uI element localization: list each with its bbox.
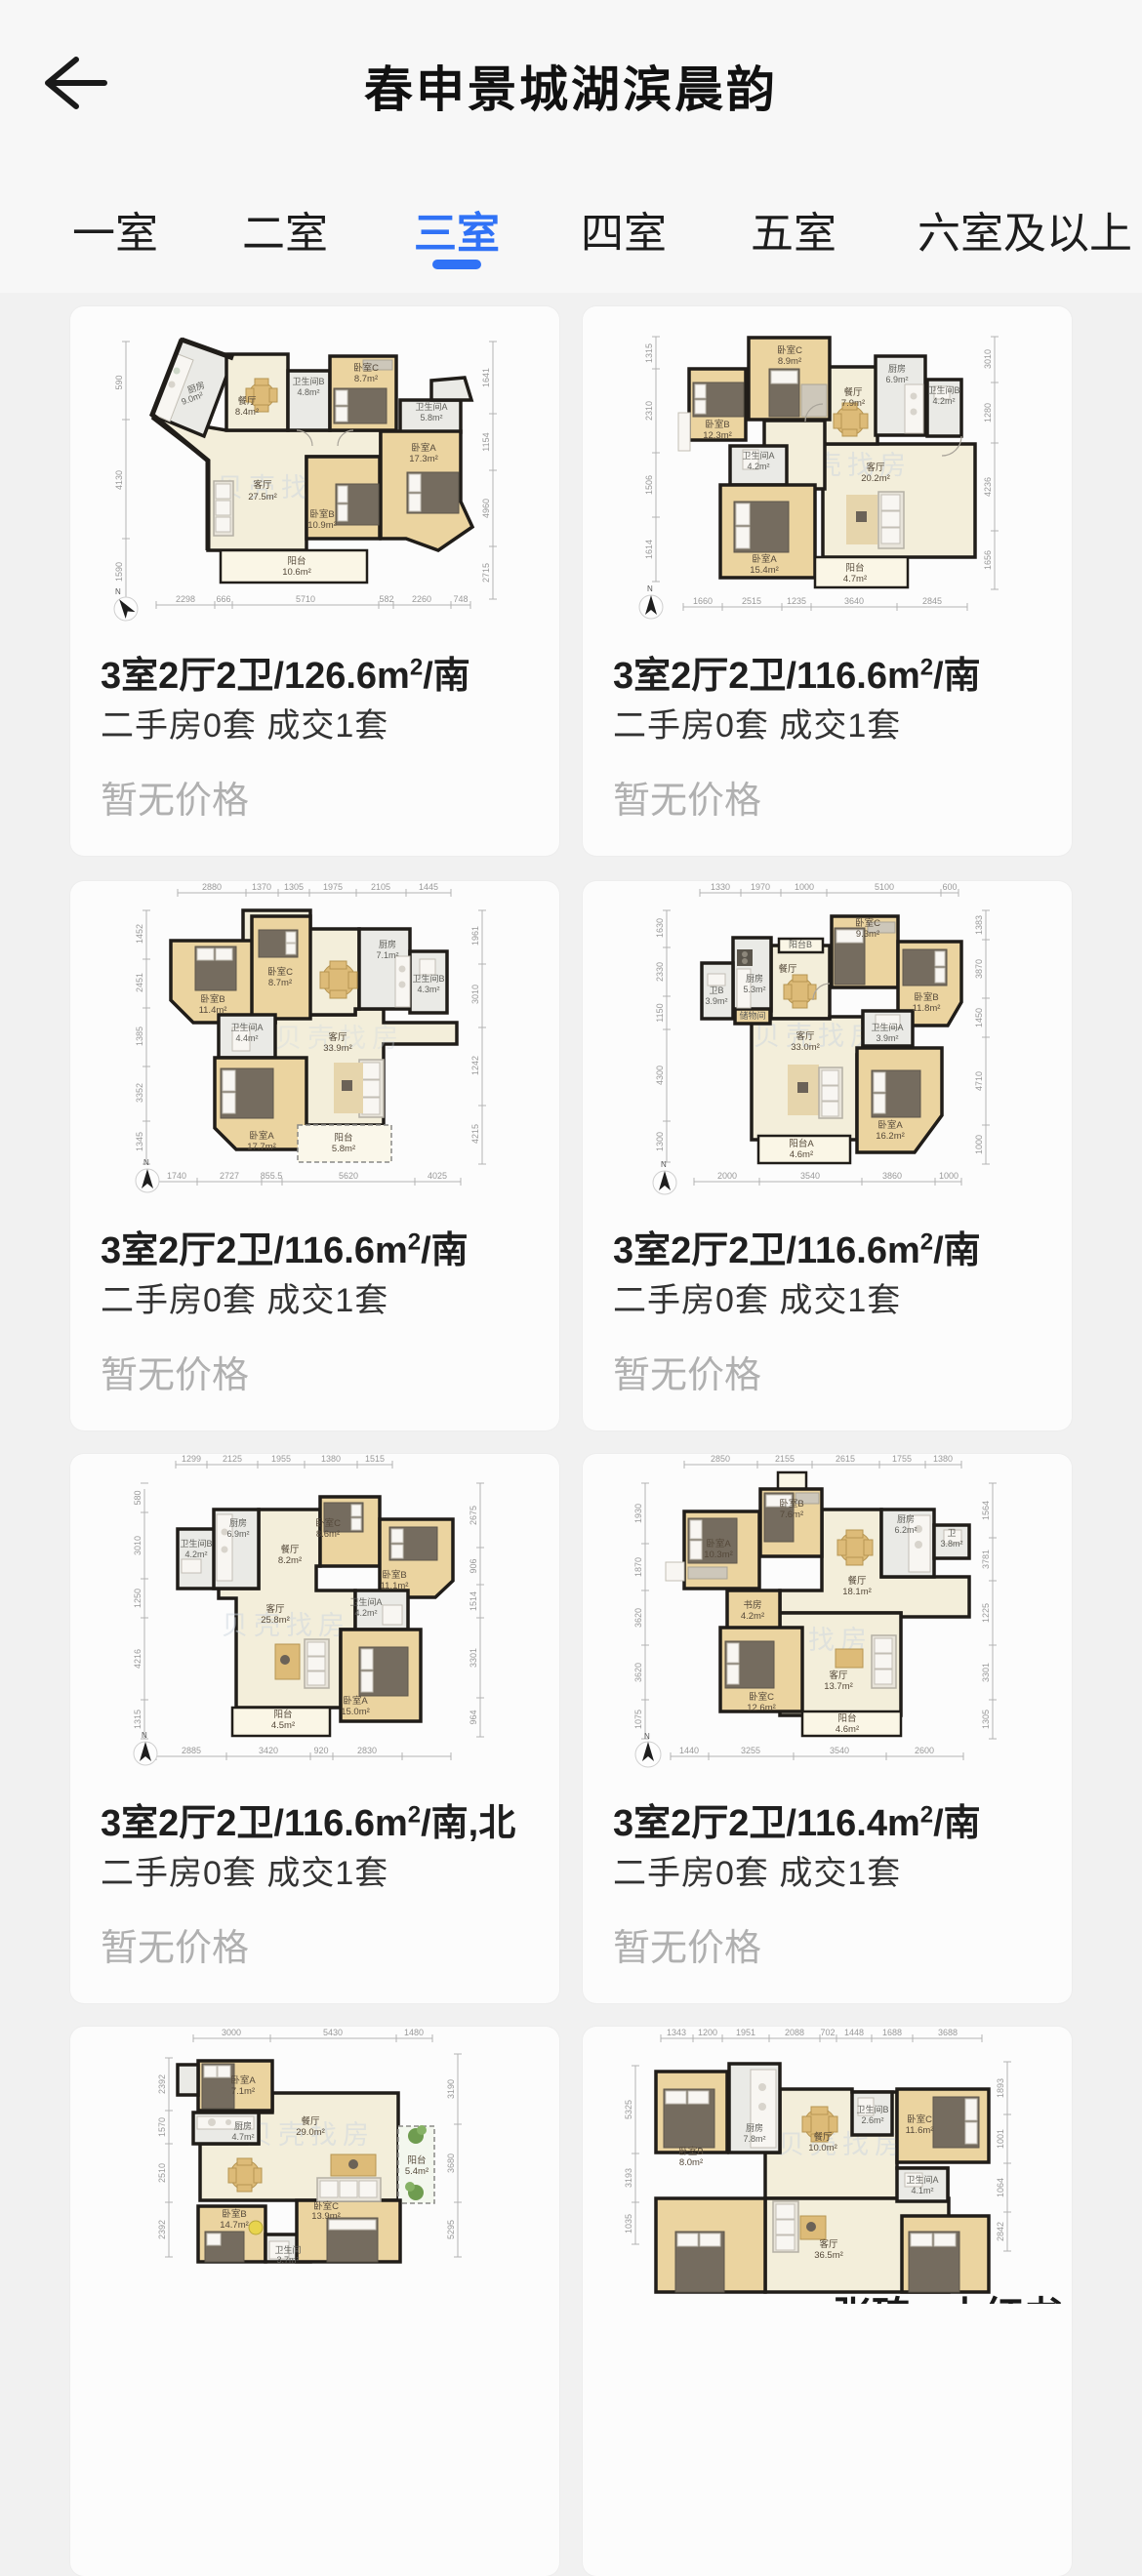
svg-text:卫生间A: 卫生间A	[871, 1022, 903, 1032]
svg-text:5325: 5325	[624, 2100, 633, 2119]
svg-text:1343: 1343	[667, 2028, 686, 2037]
svg-text:12.6m²: 12.6m²	[747, 1703, 776, 1713]
svg-text:客厅: 客厅	[265, 1603, 285, 1615]
svg-text:3.9m²: 3.9m²	[876, 1033, 898, 1043]
svg-text:5100: 5100	[875, 882, 894, 892]
svg-text:1315: 1315	[133, 1710, 143, 1729]
svg-text:2880: 2880	[202, 882, 222, 892]
svg-text:餐厅: 餐厅	[843, 386, 863, 398]
svg-text:卫生间A: 卫生间A	[742, 450, 774, 461]
svg-text:920: 920	[313, 1746, 328, 1755]
svg-text:N: N	[647, 584, 653, 593]
svg-text:4215: 4215	[470, 1124, 480, 1144]
svg-text:4.2m²: 4.2m²	[741, 1611, 764, 1622]
svg-text:11.1m²: 11.1m²	[381, 1581, 409, 1591]
svg-text:2850: 2850	[711, 1454, 730, 1464]
svg-text:1755: 1755	[892, 1454, 912, 1464]
svg-text:卧室C: 卧室C	[267, 966, 293, 978]
svg-text:厨房: 厨房	[379, 939, 396, 949]
svg-text:10.6m²: 10.6m²	[282, 567, 311, 578]
svg-text:卧室B: 卧室B	[309, 508, 334, 520]
svg-text:1450: 1450	[974, 1008, 984, 1027]
svg-text:厨房: 厨房	[746, 2122, 763, 2133]
svg-text:2715: 2715	[481, 563, 491, 583]
svg-text:1305: 1305	[981, 1710, 991, 1729]
svg-text:4025: 4025	[428, 1171, 447, 1181]
svg-text:卧室C: 卧室C	[353, 362, 379, 374]
svg-text:卧室A: 卧室A	[343, 1695, 368, 1707]
svg-text:1385: 1385	[135, 1026, 144, 1046]
svg-text:储物间: 储物间	[739, 1010, 765, 1021]
svg-text:5.8m²: 5.8m²	[332, 1144, 355, 1154]
svg-text:1480: 1480	[404, 2028, 424, 2037]
svg-text:卧室B: 卧室B	[705, 419, 729, 430]
svg-text:N: N	[661, 1160, 667, 1169]
svg-text:4.2m²: 4.2m²	[184, 1550, 207, 1559]
svg-text:卫生间B: 卫生间B	[292, 376, 324, 386]
svg-text:8.2m²: 8.2m²	[278, 1555, 302, 1566]
svg-text:阳台: 阳台	[845, 562, 864, 574]
svg-text:N: N	[644, 1732, 650, 1741]
svg-text:3620: 3620	[633, 1663, 643, 1682]
svg-text:18.1m²: 18.1m²	[842, 1587, 872, 1597]
svg-text:3420: 3420	[259, 1746, 278, 1755]
svg-text:卫B: 卫B	[709, 986, 723, 995]
svg-text:卫生间B: 卫生间B	[412, 973, 444, 984]
svg-text:3190: 3190	[446, 2079, 456, 2099]
svg-text:1656: 1656	[983, 550, 993, 570]
svg-text:1000: 1000	[795, 882, 814, 892]
svg-text:2600: 2600	[915, 1746, 934, 1755]
svg-text:1641: 1641	[481, 368, 491, 387]
svg-text:阳台B: 阳台B	[789, 939, 812, 949]
svg-text:3010: 3010	[470, 985, 480, 1004]
svg-text:3680: 3680	[446, 2153, 456, 2173]
svg-text:8.7m²: 8.7m²	[354, 374, 378, 384]
svg-text:卧室C: 卧室C	[777, 344, 802, 356]
svg-text:580: 580	[133, 1490, 143, 1505]
svg-text:3000: 3000	[222, 2028, 241, 2037]
svg-text:3688: 3688	[938, 2028, 958, 2037]
svg-text:2392: 2392	[157, 2220, 167, 2239]
svg-text:1299: 1299	[182, 1454, 201, 1464]
svg-text:1930: 1930	[633, 1504, 643, 1523]
svg-text:666: 666	[216, 594, 230, 604]
svg-text:3.7m²: 3.7m²	[276, 2255, 299, 2265]
svg-text:1660: 1660	[693, 596, 713, 606]
svg-text:1200: 1200	[698, 2028, 717, 2037]
svg-text:卧室A: 卧室A	[877, 1119, 903, 1131]
svg-text:卧室A: 卧室A	[249, 1130, 274, 1142]
svg-text:厨房: 厨房	[888, 363, 906, 374]
svg-text:3540: 3540	[830, 1746, 849, 1755]
svg-text:2330: 2330	[655, 962, 665, 982]
svg-text:5430: 5430	[323, 2028, 343, 2037]
svg-text:卫生间B: 卫生间B	[856, 2104, 888, 2114]
svg-text:客厅: 客厅	[829, 1670, 848, 1681]
svg-text:1380: 1380	[321, 1454, 341, 1464]
svg-text:2260: 2260	[412, 594, 431, 604]
svg-text:1452: 1452	[135, 924, 144, 944]
svg-text:厨房: 厨房	[229, 1517, 247, 1528]
svg-text:1225: 1225	[981, 1603, 991, 1623]
svg-text:14.7m²: 14.7m²	[220, 2220, 249, 2231]
svg-text:8.9m²: 8.9m²	[778, 356, 801, 367]
svg-text:卧室A: 卧室A	[752, 553, 777, 565]
svg-text:3860: 3860	[882, 1171, 902, 1181]
svg-text:3870: 3870	[974, 959, 984, 979]
svg-text:1614: 1614	[644, 540, 654, 559]
svg-text:1305: 1305	[284, 882, 304, 892]
svg-text:4.6m²: 4.6m²	[790, 1149, 813, 1160]
svg-text:卫生间A: 卫生间A	[230, 1022, 263, 1032]
svg-text:1154: 1154	[481, 432, 491, 451]
svg-text:卫: 卫	[947, 1528, 956, 1538]
svg-text:3301: 3301	[469, 1648, 478, 1668]
svg-text:1064: 1064	[996, 2178, 1005, 2197]
svg-text:N: N	[143, 1158, 149, 1167]
svg-text:卧室A: 卧室A	[411, 442, 436, 454]
svg-text:1570: 1570	[157, 2117, 167, 2137]
svg-text:1590: 1590	[114, 562, 124, 582]
svg-text:7.6m²: 7.6m²	[780, 1509, 803, 1520]
svg-text:1235: 1235	[787, 596, 806, 606]
svg-text:15.0m²: 15.0m²	[341, 1707, 370, 1717]
svg-text:3010: 3010	[983, 349, 993, 369]
svg-text:15.4m²: 15.4m²	[750, 565, 779, 576]
svg-text:1075: 1075	[633, 1710, 643, 1729]
svg-text:2000: 2000	[717, 1171, 737, 1181]
svg-text:书房: 书房	[743, 1599, 761, 1611]
svg-text:11.6m²: 11.6m²	[906, 2125, 934, 2136]
svg-text:1000: 1000	[939, 1171, 958, 1181]
svg-text:10.0m²: 10.0m²	[808, 2143, 837, 2153]
svg-text:33.0m²: 33.0m²	[791, 1042, 820, 1053]
svg-text:7.1m²: 7.1m²	[231, 2086, 255, 2097]
svg-text:5295: 5295	[446, 2220, 456, 2239]
svg-text:卫生间B: 卫生间B	[927, 384, 959, 395]
svg-text:8.7m²: 8.7m²	[268, 978, 292, 988]
svg-text:13.7m²: 13.7m²	[824, 1681, 853, 1692]
svg-text:8.0m²: 8.0m²	[679, 2157, 703, 2168]
svg-text:590: 590	[114, 375, 124, 389]
svg-text:3.8m²: 3.8m²	[940, 1539, 962, 1549]
svg-text:阳台: 阳台	[837, 1712, 856, 1724]
svg-text:1445: 1445	[419, 882, 438, 892]
svg-text:4.1m²: 4.1m²	[911, 2186, 933, 2195]
svg-text:4236: 4236	[983, 477, 993, 497]
svg-text:餐厅: 餐厅	[301, 2115, 320, 2127]
svg-text:9.3m²: 9.3m²	[856, 929, 879, 940]
svg-text:4.3m²: 4.3m²	[417, 985, 439, 994]
svg-text:17.7m²: 17.7m²	[247, 1142, 276, 1152]
svg-text:卧室C: 卧室C	[855, 917, 880, 929]
svg-text:1515: 1515	[365, 1454, 385, 1464]
svg-text:27.5m²: 27.5m²	[248, 492, 277, 503]
svg-text:2105: 2105	[371, 882, 390, 892]
svg-text:1383: 1383	[974, 915, 984, 935]
svg-text:11.8m²: 11.8m²	[913, 1003, 941, 1014]
svg-text:1440: 1440	[679, 1746, 699, 1755]
svg-text:8.4m²: 8.4m²	[235, 407, 259, 418]
svg-text:2830: 2830	[357, 1746, 377, 1755]
svg-text:36.5m²: 36.5m²	[814, 2250, 843, 2261]
svg-text:1330: 1330	[711, 882, 730, 892]
svg-text:25.8m²: 25.8m²	[261, 1615, 290, 1626]
svg-text:1380: 1380	[933, 1454, 953, 1464]
svg-text:10.3m²: 10.3m²	[704, 1550, 733, 1560]
svg-text:2510: 2510	[157, 2163, 167, 2183]
svg-text:3255: 3255	[741, 1746, 760, 1755]
svg-text:4216: 4216	[133, 1649, 143, 1669]
svg-text:17.3m²: 17.3m²	[409, 454, 438, 464]
svg-text:4960: 4960	[481, 499, 491, 518]
svg-text:3352: 3352	[135, 1083, 144, 1103]
svg-text:卧室B: 卧室B	[222, 2208, 246, 2220]
svg-text:5710: 5710	[296, 594, 315, 604]
svg-text:1150: 1150	[655, 1003, 665, 1022]
svg-text:1893: 1893	[996, 2078, 1005, 2098]
svg-text:4300: 4300	[655, 1066, 665, 1085]
svg-text:3193: 3193	[624, 2168, 633, 2188]
svg-text:3620: 3620	[633, 1608, 643, 1628]
svg-text:1688: 1688	[882, 2028, 902, 2037]
svg-text:1000: 1000	[974, 1135, 984, 1154]
svg-text:N: N	[142, 1731, 147, 1740]
svg-text:卧室B: 卧室B	[779, 1498, 803, 1509]
svg-text:卫生间B: 卫生间B	[180, 1538, 212, 1549]
svg-text:855.5: 855.5	[261, 1171, 283, 1181]
svg-text:1506: 1506	[644, 475, 654, 495]
svg-text:11.4m²: 11.4m²	[199, 1005, 227, 1016]
svg-text:1955: 1955	[271, 1454, 291, 1464]
svg-text:2392: 2392	[157, 2074, 167, 2094]
svg-text:2125: 2125	[223, 1454, 242, 1464]
svg-text:4.7m²: 4.7m²	[843, 574, 867, 584]
svg-text:卧室C: 卧室C	[315, 1517, 341, 1529]
svg-text:2845: 2845	[922, 596, 942, 606]
svg-text:1951: 1951	[736, 2028, 755, 2037]
svg-text:10.9m²: 10.9m²	[307, 520, 337, 531]
svg-text:964: 964	[469, 1710, 478, 1724]
svg-text:1975: 1975	[323, 882, 343, 892]
svg-text:餐厅: 餐厅	[813, 2131, 833, 2143]
svg-text:5.8m²: 5.8m²	[420, 413, 442, 423]
svg-text:2675: 2675	[469, 1506, 478, 1525]
svg-text:餐厅: 餐厅	[237, 395, 257, 407]
svg-text:2310: 2310	[644, 401, 654, 421]
svg-text:13.9m²: 13.9m²	[311, 2211, 341, 2222]
svg-text:5.3m²: 5.3m²	[743, 985, 765, 994]
svg-text:1961: 1961	[470, 926, 480, 946]
svg-text:6.9m²: 6.9m²	[226, 1529, 249, 1539]
svg-text:卧室A: 卧室A	[706, 1538, 731, 1550]
svg-text:20.2m²: 20.2m²	[861, 473, 890, 484]
svg-text:3010: 3010	[133, 1536, 143, 1555]
svg-text:卧室B: 卧室B	[200, 993, 224, 1005]
svg-text:客厅: 客厅	[819, 2238, 838, 2250]
svg-text:1870: 1870	[633, 1557, 643, 1577]
svg-text:4.5m²: 4.5m²	[271, 1720, 295, 1731]
svg-text:卧室B: 卧室B	[678, 2146, 703, 2157]
svg-text:906: 906	[469, 1558, 478, 1573]
svg-text:2451: 2451	[135, 973, 144, 992]
svg-text:8.6m²: 8.6m²	[316, 1529, 340, 1540]
svg-text:1564: 1564	[981, 1501, 991, 1520]
svg-text:16.2m²: 16.2m²	[876, 1131, 905, 1142]
svg-text:1514: 1514	[469, 1591, 478, 1611]
svg-text:客厅: 客厅	[328, 1031, 347, 1043]
svg-text:卫生间A: 卫生间A	[349, 1596, 382, 1607]
svg-text:1242: 1242	[470, 1056, 480, 1075]
svg-text:客厅: 客厅	[866, 462, 885, 473]
svg-text:阳台: 阳台	[273, 1709, 292, 1720]
svg-text:1280: 1280	[983, 403, 993, 423]
svg-text:1740: 1740	[167, 1171, 186, 1181]
svg-text:1630: 1630	[655, 918, 665, 938]
svg-text:卧室B: 卧室B	[914, 991, 938, 1003]
svg-text:餐厅: 餐厅	[778, 963, 797, 975]
svg-text:6.2m²: 6.2m²	[894, 1525, 917, 1535]
svg-text:1250: 1250	[133, 1589, 143, 1608]
svg-text:阳台: 阳台	[287, 555, 306, 567]
svg-text:582: 582	[379, 594, 393, 604]
svg-text:7.9m²: 7.9m²	[841, 398, 865, 409]
svg-text:N: N	[115, 587, 121, 596]
svg-text:4.2m²: 4.2m²	[354, 1608, 377, 1618]
svg-text:2515: 2515	[742, 596, 761, 606]
svg-text:2298: 2298	[176, 594, 195, 604]
svg-text:3781: 3781	[981, 1550, 991, 1569]
svg-text:卫生间A: 卫生间A	[415, 401, 447, 412]
svg-text:600: 600	[942, 882, 957, 892]
svg-text:4130: 4130	[114, 470, 124, 490]
svg-text:4.7m²: 4.7m²	[231, 2132, 254, 2142]
svg-text:12.3m²: 12.3m²	[703, 430, 732, 441]
svg-text:6.9m²: 6.9m²	[885, 375, 908, 384]
svg-text:2088: 2088	[785, 2028, 804, 2037]
svg-text:5.4m²: 5.4m²	[405, 2166, 428, 2177]
svg-text:客厅: 客厅	[253, 479, 272, 491]
svg-text:1345: 1345	[135, 1132, 144, 1151]
svg-text:餐厅: 餐厅	[847, 1575, 867, 1587]
svg-text:阳台A: 阳台A	[789, 1138, 814, 1149]
svg-text:5620: 5620	[339, 1171, 358, 1181]
svg-text:厨房: 厨房	[234, 2120, 252, 2131]
svg-text:7.8m²: 7.8m²	[743, 2134, 765, 2144]
svg-text:7.1m²: 7.1m²	[376, 950, 398, 960]
svg-text:餐厅: 餐厅	[280, 1544, 300, 1555]
svg-text:1370: 1370	[252, 882, 271, 892]
svg-text:阳台: 阳台	[407, 2154, 426, 2166]
svg-text:3.9m²: 3.9m²	[705, 996, 727, 1006]
svg-text:客厅: 客厅	[795, 1030, 815, 1042]
svg-text:2885: 2885	[182, 1746, 201, 1755]
svg-text:1448: 1448	[844, 2028, 864, 2037]
svg-text:2615: 2615	[836, 1454, 855, 1464]
svg-text:3540: 3540	[800, 1171, 820, 1181]
svg-text:1970: 1970	[751, 882, 770, 892]
svg-text:4.4m²: 4.4m²	[235, 1033, 258, 1043]
svg-text:卫生间A: 卫生间A	[906, 2174, 938, 2185]
svg-text:29.0m²: 29.0m²	[296, 2127, 325, 2138]
svg-text:卧室C: 卧室C	[749, 1691, 774, 1703]
svg-text:阳台: 阳台	[334, 1132, 352, 1144]
svg-text:卧室B: 卧室B	[382, 1569, 406, 1581]
svg-text:厨房: 厨房	[897, 1513, 915, 1524]
svg-text:1035: 1035	[624, 2214, 633, 2234]
svg-text:2155: 2155	[775, 1454, 795, 1464]
svg-text:4.6m²: 4.6m²	[836, 1724, 859, 1735]
svg-text:4.8m²: 4.8m²	[297, 387, 319, 397]
svg-text:3301: 3301	[981, 1663, 991, 1682]
svg-text:33.9m²: 33.9m²	[323, 1043, 352, 1054]
svg-text:2842: 2842	[996, 2222, 1005, 2241]
svg-text:4.2m²: 4.2m²	[747, 462, 769, 471]
svg-text:3640: 3640	[844, 596, 864, 606]
svg-text:748: 748	[453, 594, 468, 604]
svg-text:卧室C: 卧室C	[907, 2113, 932, 2125]
svg-text:702: 702	[820, 2028, 835, 2037]
svg-text:1300: 1300	[655, 1132, 665, 1151]
svg-text:卧室A: 卧室A	[230, 2074, 256, 2086]
svg-text:2.6m²: 2.6m²	[861, 2115, 883, 2125]
svg-text:1315: 1315	[644, 343, 654, 363]
svg-text:厨房: 厨房	[746, 973, 763, 984]
svg-text:1001: 1001	[996, 2129, 1005, 2149]
svg-text:4710: 4710	[974, 1071, 984, 1091]
svg-text:4.2m²: 4.2m²	[932, 396, 955, 406]
svg-text:2727: 2727	[220, 1171, 239, 1181]
svg-text:卫生间: 卫生间	[274, 2244, 301, 2255]
